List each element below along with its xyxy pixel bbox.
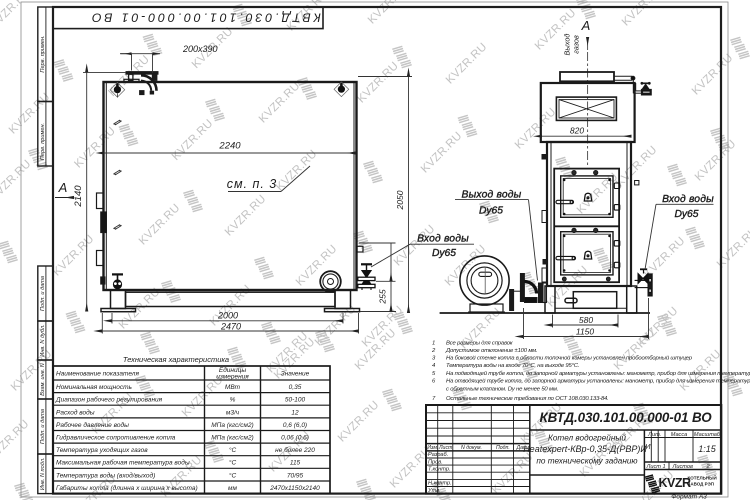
svg-text:Вход воды: Вход воды (417, 233, 469, 244)
svg-text:Температура воды (вход/выход): Температура воды (вход/выход) (56, 471, 155, 479)
svg-text:Инв. N дубл.: Инв. N дубл. (40, 324, 46, 356)
svg-text:255: 255 (378, 289, 388, 304)
svg-text:Взам. инв. N: Взам. инв. N (40, 362, 46, 396)
svg-text:KVZR.RU: KVZR.RU (223, 193, 269, 239)
svg-text:KVZR.RU: KVZR.RU (392, 223, 438, 269)
svg-text:2140: 2140 (73, 185, 84, 208)
svg-text:Инв. N подл.: Инв. N подл. (40, 457, 46, 490)
svg-text:Подп. и дата: Подп. и дата (40, 276, 46, 311)
svg-text:580: 580 (579, 315, 593, 325)
svg-text:KVZR.RU: KVZR.RU (693, 138, 739, 184)
svg-text:Вход воды: Вход воды (662, 194, 714, 205)
svg-text:газов: газов (571, 35, 580, 54)
svg-text:KVZR.RU: KVZR.RU (612, 327, 658, 373)
svg-text:Листов: Листов (672, 464, 693, 470)
svg-text:МВт: МВт (225, 384, 241, 391)
svg-text:KVZR.RU: KVZR.RU (257, 80, 303, 126)
svg-text:°С: °С (229, 471, 237, 479)
svg-text:Формат А3: Формат А3 (671, 494, 707, 500)
svg-text:А: А (581, 18, 591, 33)
svg-text:Подп. и дата: Подп. и дата (40, 409, 46, 444)
svg-text:KVZR.RU: KVZR.RU (313, 303, 359, 349)
svg-text:Выход: Выход (563, 34, 572, 56)
svg-text:KVZR.RU: KVZR.RU (336, 399, 382, 445)
svg-text:1150: 1150 (576, 326, 595, 336)
svg-text:2470х1150х2140: 2470х1150х2140 (269, 485, 320, 492)
svg-text:6: 6 (432, 379, 436, 385)
svg-text:2470: 2470 (220, 321, 241, 331)
svg-text:KVZR.RU: KVZR.RU (620, 0, 666, 29)
svg-text:KVZR.RU: KVZR.RU (690, 52, 736, 98)
svg-text:Выход воды: Выход воды (462, 190, 522, 201)
svg-text:Dy65: Dy65 (674, 209, 698, 220)
svg-text:Перв. примен.: Перв. примен. (40, 35, 46, 72)
svg-text:На боковой стенке котла в обла: На боковой стенке котла в области топочн… (446, 355, 693, 362)
svg-text:КОТЕЛЬНЫЙ: КОТЕЛЬНЫЙ (688, 474, 717, 481)
svg-text:KVZR: KVZR (659, 476, 692, 490)
svg-text:Номинальная мощность: Номинальная мощность (56, 384, 133, 391)
svg-text:Максимальная рабочая температу: Максимальная рабочая температура воды (56, 459, 190, 467)
svg-text:0,6 (6,0): 0,6 (6,0) (283, 422, 307, 429)
svg-text:3: 3 (432, 356, 436, 362)
svg-text:см. п. 3: см. п. 3 (227, 177, 278, 191)
svg-text:KVZR.RU: KVZR.RU (0, 418, 32, 464)
svg-text:Перв. примен.: Перв. примен. (40, 123, 46, 160)
svg-text:Наименование показателя: Наименование показателя (56, 371, 139, 378)
svg-text:820: 820 (570, 125, 584, 135)
svg-text:Разраб.: Разраб. (428, 452, 448, 458)
svg-text:Гидравлическое сопротивление к: Гидравлическое сопротивление котла (56, 434, 176, 442)
svg-text:по техническому заданию: по техническому заданию (536, 457, 637, 466)
svg-text:Единицы: Единицы (219, 366, 246, 374)
svg-text:Пров.: Пров. (428, 459, 443, 465)
svg-text:1: 1 (663, 464, 666, 470)
svg-text:KVZR.RU: KVZR.RU (294, 243, 340, 289)
svg-text:Масштаб: Масштаб (694, 432, 721, 438)
svg-text:2000: 2000 (217, 311, 238, 321)
svg-text:Лист: Лист (646, 464, 662, 470)
svg-text:мм: мм (228, 485, 237, 492)
svg-text:4: 4 (432, 363, 436, 369)
svg-text:KVZR.RU: KVZR.RU (170, 117, 216, 163)
svg-text:0,35: 0,35 (289, 384, 302, 391)
svg-text:KVZR.RU: KVZR.RU (366, 0, 412, 27)
svg-text:12: 12 (291, 409, 299, 416)
svg-text:МПа (кгс/см2): МПа (кгс/см2) (211, 422, 253, 429)
svg-text:2: 2 (431, 348, 436, 354)
svg-text:Dy65: Dy65 (432, 248, 456, 259)
svg-text:Температура уходящих газов: Температура уходящих газов (56, 446, 148, 454)
svg-text:Значение: Значение (281, 371, 310, 378)
svg-text:Dy65: Dy65 (479, 206, 503, 217)
svg-text:50-100: 50-100 (285, 397, 306, 404)
svg-text:Диапазон рабочего регулировани: Диапазон рабочего регулирования (55, 396, 163, 404)
svg-text:2050: 2050 (395, 190, 405, 210)
svg-text:Рабочее давление воды: Рабочее давление воды (56, 421, 129, 429)
svg-text:1: 1 (432, 341, 435, 347)
svg-text:KVZR.RU: KVZR.RU (444, 41, 490, 87)
svg-text:Т.контр.: Т.контр. (428, 466, 451, 472)
svg-text:Все размеры для справок: Все размеры для справок (446, 341, 513, 347)
svg-text:KVZR.RU: KVZR.RU (513, 106, 559, 152)
svg-text:А: А (58, 180, 68, 195)
svg-text:Допустимое отклонение ±100 мм: Допустимое отклонение ±100 мм. (445, 348, 538, 354)
svg-text:Н.контр.: Н.контр. (428, 481, 452, 487)
svg-text:КВТД.030.101.00.000-01 ВО: КВТД.030.101.00.000-01 ВО (89, 10, 321, 24)
svg-text:Температура воды на входе 70°: Температура воды на входе 70°С, на выход… (446, 363, 579, 369)
svg-text:KVZR.RU: KVZR.RU (0, 158, 34, 204)
svg-text:5: 5 (432, 371, 436, 377)
svg-text:KVZR.RU: KVZR.RU (51, 233, 97, 279)
svg-text:КВТД.030.101.00.000-01 ВО: КВТД.030.101.00.000-01 ВО (539, 410, 712, 425)
svg-text:Остальные технические требован: Остальные технические требования по ОСТ … (446, 396, 609, 402)
svg-text:7: 7 (432, 396, 436, 402)
svg-text:KVZR.RU: KVZR.RU (355, 60, 401, 106)
svg-text:Подп.: Подп. (496, 445, 510, 451)
svg-text:200х390: 200х390 (182, 44, 218, 54)
svg-text:2240: 2240 (218, 141, 241, 152)
svg-text:KVZR.RU: KVZR.RU (419, 130, 465, 176)
svg-text:KVZR.RU: KVZR.RU (137, 202, 183, 248)
svg-text:м3/ч: м3/ч (226, 409, 240, 416)
svg-text:Масса: Масса (671, 432, 688, 438)
svg-text:ЗАВОД РЭП: ЗАВОД РЭП (688, 482, 715, 487)
svg-text:Габариты котла (длинна х ширин: Габариты котла (длинна х ширина х высота… (56, 484, 198, 492)
svg-text:Изм.: Изм. (427, 445, 438, 451)
svg-text:°С: °С (229, 446, 237, 454)
svg-text:Котел водогрейный: Котел водогрейный (548, 434, 626, 443)
svg-text:Техническая характеристика: Техническая характеристика (123, 355, 229, 364)
svg-text:0,06 (0,6): 0,06 (0,6) (281, 435, 309, 442)
svg-text:70/95: 70/95 (287, 472, 304, 479)
svg-text:Расход воды: Расход воды (56, 408, 95, 416)
svg-text:Лит.: Лит. (647, 432, 661, 438)
svg-text:На подводящей трубе котла, д: На подводящей трубе котла, до запорной а… (446, 370, 750, 377)
svg-text:И: И (645, 442, 651, 451)
svg-text:МПа (кгс/см2): МПа (кгс/см2) (211, 435, 253, 442)
svg-text:KVZR.RU: KVZR.RU (614, 144, 660, 190)
svg-text:KVZR.RU: KVZR.RU (274, 148, 320, 194)
svg-text:с обратным клапаном. Dу не мен: с обратным клапаном. Dу не менее 50 мм. (446, 386, 558, 392)
svg-text:%: % (230, 397, 236, 404)
svg-text:115: 115 (290, 460, 301, 467)
svg-text:KVZR.RU: KVZR.RU (9, 348, 55, 394)
svg-text:KVZR.RU: KVZR.RU (72, 125, 118, 171)
svg-text:°С: °С (229, 459, 237, 467)
svg-text:Лист: Лист (438, 445, 453, 451)
svg-text:Heatexpert-КВр-0,35-Д(РВР)И: Heatexpert-КВр-0,35-Д(РВР)И (523, 444, 647, 454)
svg-text:N докум.: N докум. (461, 445, 482, 451)
svg-text:KVZR.RU: KVZR.RU (180, 374, 226, 420)
svg-text:не более 220: не более 220 (275, 446, 315, 454)
svg-text:Утв.: Утв. (427, 488, 441, 494)
svg-text:На отводящей трубе котла, до з: На отводящей трубе котла, до запорной ар… (446, 378, 750, 385)
svg-text:KVZR.RU: KVZR.RU (0, 0, 34, 32)
svg-text:1:15: 1:15 (698, 444, 717, 454)
svg-text:измерения: измерения (216, 374, 249, 381)
